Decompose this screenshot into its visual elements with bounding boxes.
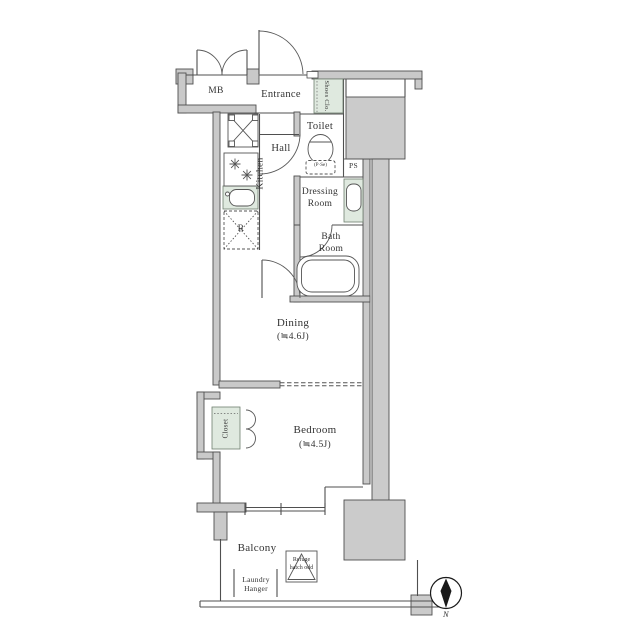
wall-west (213, 112, 220, 385)
balcony-rail (200, 601, 441, 607)
wall-bath-south (290, 296, 370, 302)
sliding-door-lines (280, 383, 363, 386)
label-shoes-closet: Shoes Clo. (318, 79, 334, 113)
label-balcony: Balcony (227, 542, 287, 555)
label-toilet: Toilet (295, 121, 345, 133)
label-laundry-hanger: Laundry Hanger (234, 575, 278, 593)
label-dining: Dining (263, 317, 323, 330)
structural-blocks (344, 97, 432, 615)
floor-plan: MB Entrance Shoes Clo. Toilet (P·Se) PS … (0, 0, 628, 640)
door-stop (307, 72, 318, 79)
label-dressing-room: Dressing Room (294, 186, 346, 210)
label-refrigerator: R (231, 224, 251, 235)
closet-bifold-arc-2 (246, 429, 256, 448)
washer-corner (229, 141, 235, 147)
window-ticks (245, 503, 325, 515)
wall-east (363, 159, 370, 484)
toilet-bowl (308, 135, 333, 164)
label-dining-size: (≒4.6J) (265, 332, 321, 343)
stove (224, 153, 258, 186)
label-closet: Closet (221, 407, 232, 451)
block-top-right (346, 97, 405, 159)
wall-bedroom-south (197, 503, 246, 512)
sliding-door (280, 383, 363, 386)
label-bedroom: Bedroom (285, 424, 345, 437)
entrance-door-arc (259, 31, 303, 74)
bathtub-inner (302, 260, 355, 292)
closet-bifold-arc-1 (246, 410, 256, 429)
label-kitchen: Kitchen (255, 144, 268, 204)
washbasin-bowl (347, 184, 362, 211)
wall-entrance-jamb (247, 69, 259, 84)
burner-icon (242, 170, 253, 181)
wall-dining-bedroom-partition (219, 381, 280, 388)
label-mb: MB (186, 86, 246, 97)
mb-door-arc-left (197, 50, 222, 75)
label-toilet-note: (P·Se) (305, 163, 336, 169)
block-east-column (372, 159, 389, 501)
label-ps: PS (341, 162, 366, 171)
faucet-icon (226, 192, 230, 196)
label-bath-room: Bath Room (311, 231, 351, 255)
washer-corner (229, 115, 235, 121)
wall-closet-alcove-left (197, 392, 204, 459)
wall-right-elbow (415, 79, 422, 89)
washer-corner (253, 115, 259, 121)
bedroom-window (245, 508, 325, 512)
balcony-pillar-right (411, 595, 432, 615)
burner-icon (230, 159, 241, 170)
label-entrance: Entrance (246, 89, 316, 101)
balcony-pillar-left (214, 512, 227, 540)
mb-door-arc-right (222, 50, 247, 75)
label-refuge-hatch: Refuge hatch odd (287, 557, 316, 572)
wall-west-lower (213, 452, 220, 509)
compass-icon (431, 578, 462, 609)
label-bedroom-size: (≒4.5J) (287, 440, 343, 451)
label-compass-north: N (438, 610, 454, 620)
wall-top-right (312, 71, 422, 79)
block-bottom-right (344, 500, 405, 560)
sink-bowl (230, 190, 255, 207)
